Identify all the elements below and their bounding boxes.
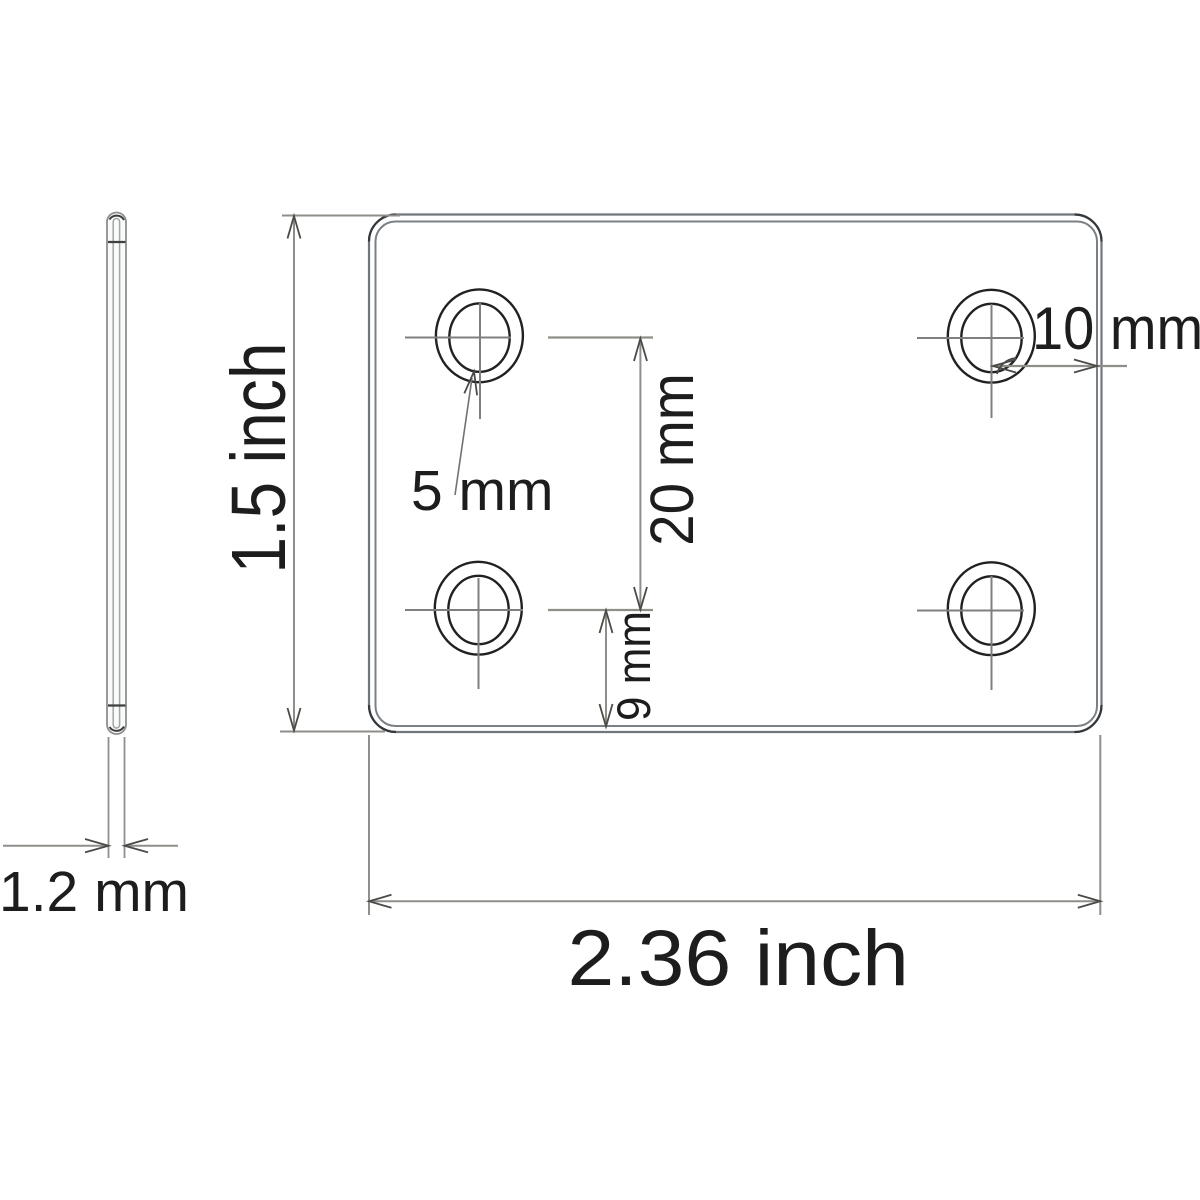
svg-text:20 mm: 20 mm [639,373,706,546]
svg-text:5 mm: 5 mm [411,459,554,523]
svg-text:1.5 inch: 1.5 inch [216,342,302,573]
svg-text:9 mm: 9 mm [608,611,661,721]
svg-text:10 mm: 10 mm [1032,296,1200,362]
svg-text:2.36 inch: 2.36 inch [568,914,909,1002]
svg-text:1.2 mm: 1.2 mm [0,860,189,924]
